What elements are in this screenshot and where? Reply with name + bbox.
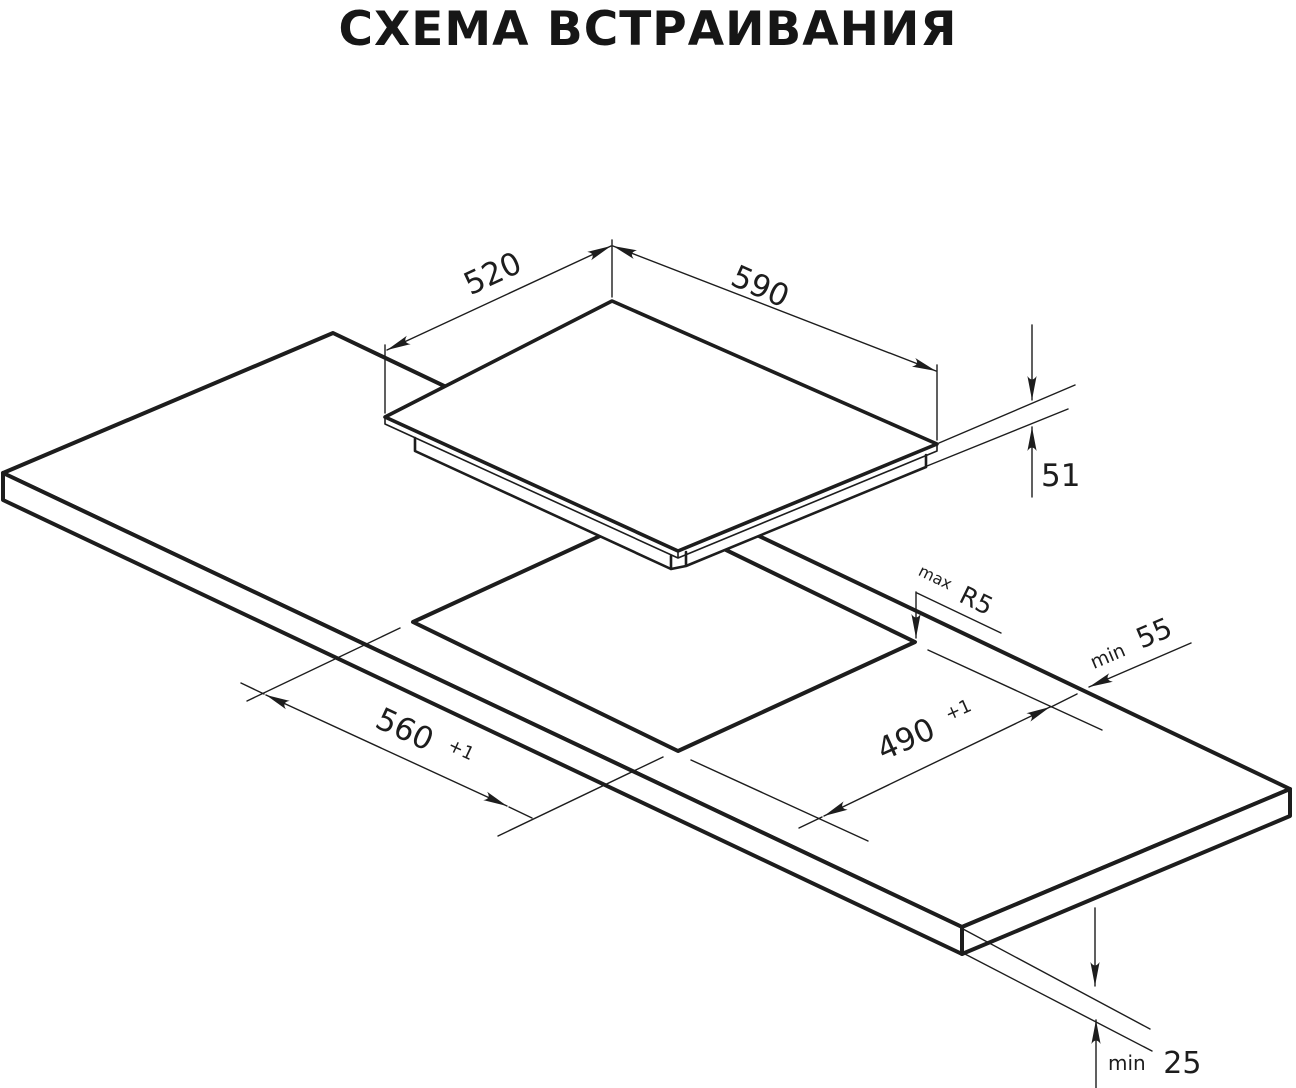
overshoot bbox=[509, 807, 532, 818]
dim-cutout-depth-tolerance: +1 bbox=[445, 735, 478, 765]
ext-line bbox=[963, 953, 1152, 1051]
dim-hob-height-label: 51 bbox=[1041, 458, 1080, 494]
dim-hob-depth-label: 520 bbox=[458, 245, 527, 303]
dim-cutout-depth-value: 560 bbox=[370, 701, 439, 759]
dim-corner-radius-prefix: max bbox=[916, 561, 956, 593]
dim-worktop-thickness-label: min 25 bbox=[1108, 1043, 1201, 1081]
installation-diagram-page: { "title": "СХЕМА ВСТРАИВАНИЯ", "colors"… bbox=[0, 0, 1296, 1088]
dim-rear-clearance-value: 55 bbox=[1131, 611, 1177, 655]
overshoot bbox=[241, 683, 264, 694]
dim-worktop-thickness-value: 25 bbox=[1163, 1046, 1201, 1081]
installation-drawing: 520 590 51 max R5 min 55 490 +1 bbox=[0, 0, 1296, 1088]
dim-rear-clearance-prefix: min bbox=[1087, 639, 1129, 673]
dim-hob-width-label: 590 bbox=[726, 258, 795, 315]
dim-worktop-thickness-prefix: min bbox=[1108, 1051, 1146, 1075]
dim-rear-clearance-label: min 55 bbox=[1084, 611, 1177, 676]
ext-line bbox=[963, 929, 1150, 1029]
